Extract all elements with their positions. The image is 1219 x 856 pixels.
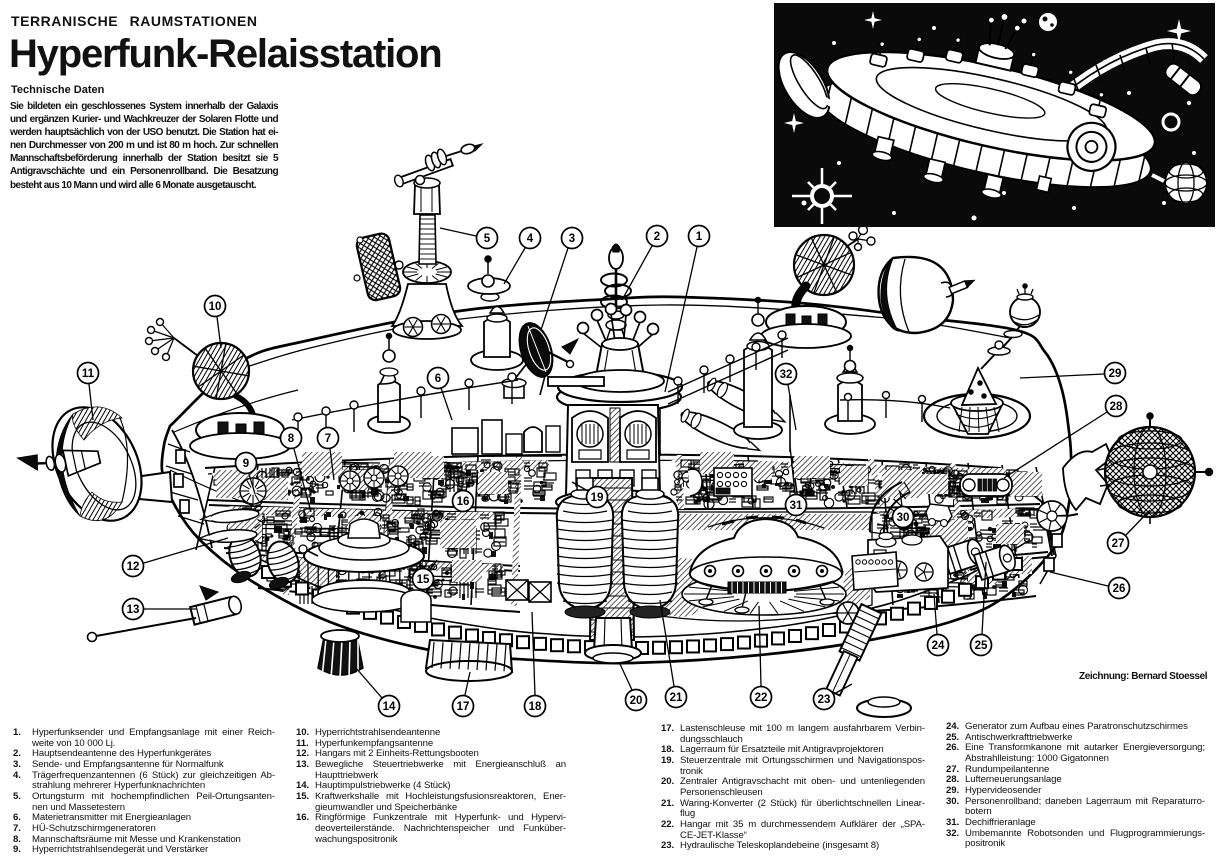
svg-text:31: 31 bbox=[790, 500, 803, 512]
svg-text:6: 6 bbox=[435, 373, 441, 385]
svg-text:24: 24 bbox=[932, 640, 945, 652]
svg-text:29: 29 bbox=[1109, 368, 1122, 380]
svg-text:28: 28 bbox=[1110, 401, 1123, 413]
svg-text:30: 30 bbox=[897, 512, 910, 524]
svg-text:11: 11 bbox=[82, 368, 95, 380]
svg-text:14: 14 bbox=[383, 701, 396, 713]
svg-text:4: 4 bbox=[527, 233, 534, 245]
svg-text:18: 18 bbox=[529, 701, 542, 713]
svg-text:21: 21 bbox=[670, 692, 683, 704]
svg-text:27: 27 bbox=[1112, 538, 1125, 550]
svg-text:2: 2 bbox=[654, 231, 660, 243]
svg-text:26: 26 bbox=[1113, 583, 1126, 595]
svg-text:22: 22 bbox=[755, 692, 768, 704]
svg-text:3: 3 bbox=[569, 233, 575, 245]
svg-text:17: 17 bbox=[457, 701, 470, 713]
svg-text:32: 32 bbox=[780, 369, 793, 381]
svg-text:9: 9 bbox=[243, 458, 249, 470]
svg-text:23: 23 bbox=[818, 694, 831, 706]
svg-text:19: 19 bbox=[591, 492, 604, 504]
svg-text:10: 10 bbox=[209, 301, 222, 313]
svg-text:7: 7 bbox=[325, 433, 331, 445]
svg-text:16: 16 bbox=[457, 496, 470, 508]
svg-text:12: 12 bbox=[127, 561, 140, 573]
svg-text:5: 5 bbox=[484, 233, 491, 245]
svg-text:13: 13 bbox=[127, 604, 140, 616]
svg-text:25: 25 bbox=[975, 640, 988, 652]
svg-text:15: 15 bbox=[417, 574, 430, 586]
svg-text:1: 1 bbox=[696, 231, 703, 243]
svg-text:20: 20 bbox=[630, 695, 643, 707]
svg-text:8: 8 bbox=[288, 433, 295, 445]
